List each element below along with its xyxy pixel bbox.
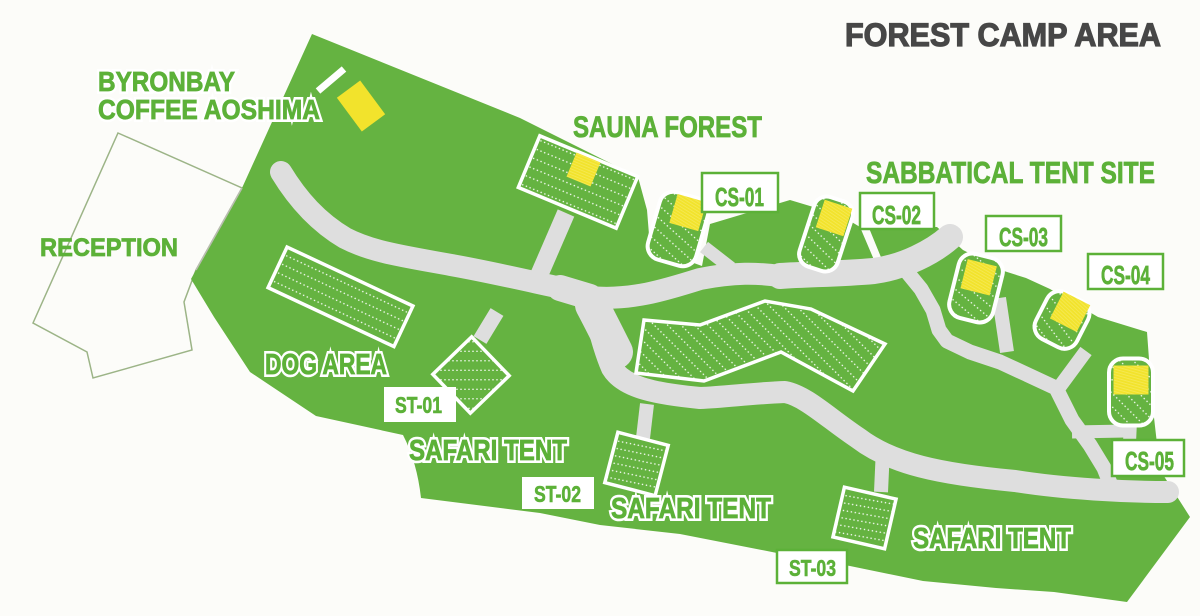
svg-text:ST-01: ST-01 (395, 392, 442, 418)
svg-text:CS-05: CS-05 (1125, 446, 1174, 476)
svg-text:SAFARI TENT: SAFARI TENT (913, 523, 1071, 555)
svg-text:CS-01: CS-01 (715, 182, 764, 212)
svg-text:CS-04: CS-04 (1101, 260, 1150, 290)
svg-text:RECEPTION: RECEPTION (40, 234, 178, 262)
svg-text:SABBATICAL TENT SITE: SABBATICAL TENT SITE (866, 155, 1155, 190)
svg-text:ST-03: ST-03 (789, 555, 836, 581)
svg-text:COFFEE AOSHIMA: COFFEE AOSHIMA (98, 94, 320, 125)
svg-text:CS-03: CS-03 (999, 222, 1048, 252)
svg-text:SAUNA FOREST: SAUNA FOREST (573, 111, 762, 144)
svg-text:SAFARI TENT: SAFARI TENT (409, 435, 567, 467)
svg-text:BYRONBAY: BYRONBAY (98, 66, 235, 97)
svg-text:FOREST CAMP AREA: FOREST CAMP AREA (845, 17, 1161, 53)
svg-text:DOG AREA: DOG AREA (265, 349, 387, 381)
svg-text:CS-02: CS-02 (872, 200, 921, 230)
svg-text:ST-02: ST-02 (534, 481, 581, 507)
svg-text:SAFARI TENT: SAFARI TENT (611, 493, 771, 525)
